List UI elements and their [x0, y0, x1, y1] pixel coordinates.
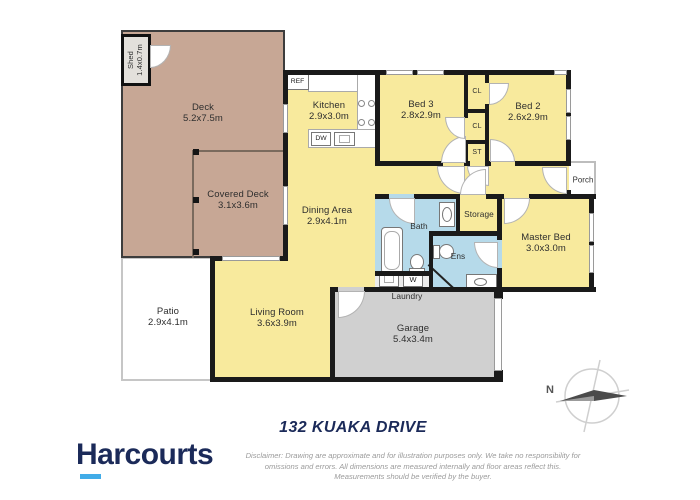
window — [386, 70, 413, 75]
deck-label: Deck 5.2x7.5m — [183, 102, 223, 124]
window — [589, 213, 594, 242]
floor-plan-page: REF DW W — [0, 0, 700, 500]
deck-post — [193, 249, 199, 255]
harcourts-logo: Harcourts — [76, 438, 213, 472]
wall — [429, 231, 502, 236]
bath-label: Bath — [410, 222, 427, 232]
laundry-label: Laundry — [392, 292, 423, 302]
garage-door-opening — [494, 298, 502, 371]
washer-label: W — [404, 276, 422, 284]
wall — [210, 256, 215, 382]
wall — [515, 161, 571, 166]
compass-north-label: N — [546, 384, 554, 396]
bathtub-inner — [384, 231, 400, 270]
wall — [529, 194, 596, 199]
page-title: 132 KUAKA DRIVE — [133, 419, 573, 437]
covered-deck-boundary-top — [192, 150, 285, 152]
bed3-label: Bed 3 2.8x2.9m — [401, 99, 441, 121]
window — [566, 89, 571, 113]
wall — [464, 70, 468, 118]
wall — [497, 194, 502, 240]
disclaimer-text: Disclaimer: Drawing are approximate and … — [235, 451, 591, 483]
deck-post — [193, 197, 199, 203]
window — [417, 70, 444, 75]
storage-label: Storage — [464, 210, 494, 220]
window — [554, 70, 567, 75]
window — [283, 104, 288, 133]
stove-icon — [358, 100, 375, 126]
covered-deck-boundary-left — [192, 150, 194, 258]
wall — [414, 194, 459, 199]
laundry-tub-bowl — [384, 275, 394, 283]
wall — [210, 377, 502, 382]
wall — [494, 370, 503, 382]
wall — [375, 194, 389, 199]
wall — [283, 70, 288, 261]
master-bed-label: Master Bed 3.0x3.0m — [521, 232, 571, 254]
closet2-label: CL — [472, 123, 481, 131]
bed2-label: Bed 2 2.6x2.9m — [508, 101, 548, 123]
wall — [429, 231, 433, 287]
window — [566, 116, 571, 140]
closet3-label: ST — [472, 149, 481, 157]
wall — [485, 70, 489, 83]
closet1-label: CL — [472, 88, 481, 96]
dishwasher-label: DW — [312, 136, 330, 143]
window — [222, 256, 280, 261]
wall — [485, 104, 489, 166]
window — [589, 245, 594, 273]
bath-vanity-basin — [442, 207, 452, 222]
wall — [456, 194, 460, 231]
garage-label: Garage 5.4x3.4m — [393, 323, 433, 345]
covered-deck-label: Covered Deck 3.1x3.6m — [207, 189, 268, 211]
kitchen-label: Kitchen 2.9x3.0m — [309, 100, 349, 122]
porch-label: Porch — [573, 175, 594, 184]
ens-label: Ens — [451, 252, 466, 262]
wall — [589, 194, 594, 292]
living-label: Living Room 3.6x3.9m — [250, 307, 304, 329]
wall — [330, 287, 335, 382]
ens-vanity-basin — [474, 278, 487, 286]
window — [283, 186, 288, 225]
deck-post — [193, 149, 199, 155]
wall — [375, 70, 380, 166]
dining-label: Dining Area 2.9x4.1m — [302, 205, 352, 227]
patio-label: Patio 2.9x4.1m — [148, 306, 188, 328]
kitchen-sink-bowl — [339, 135, 350, 143]
harcourts-logo-underline — [80, 474, 101, 479]
wall — [375, 161, 443, 166]
fridge-label: REF — [288, 79, 307, 86]
shed-label: Shed 1.4x0.7m — [127, 44, 145, 76]
